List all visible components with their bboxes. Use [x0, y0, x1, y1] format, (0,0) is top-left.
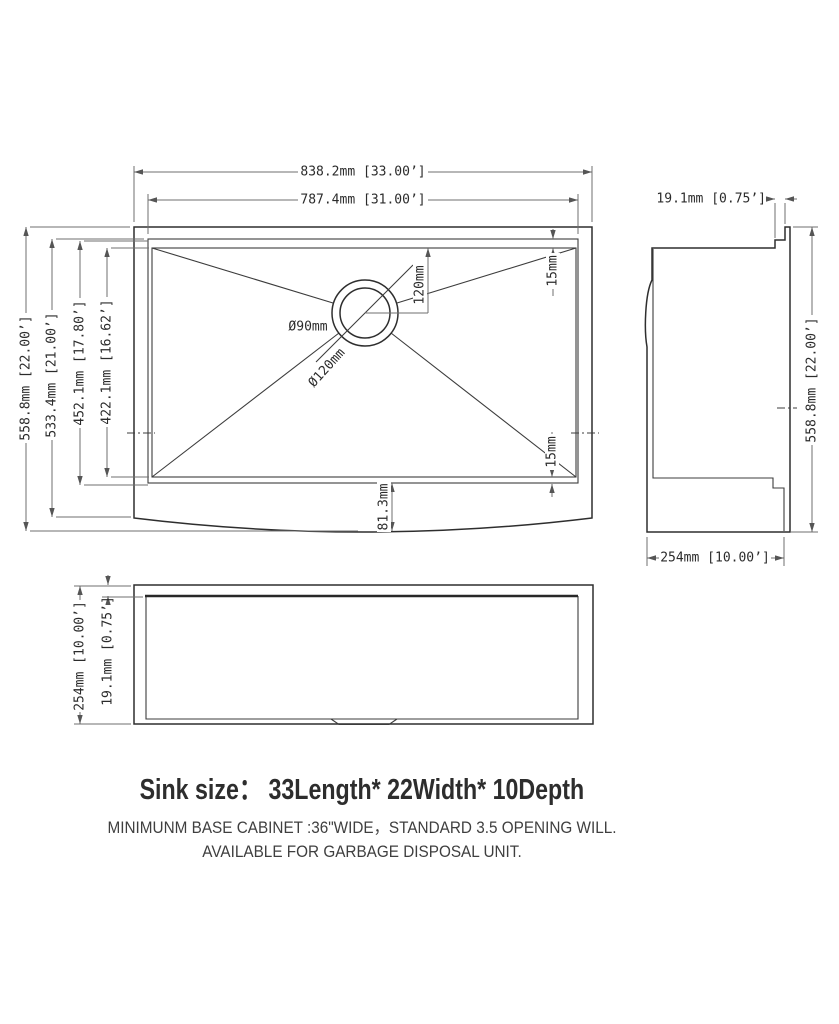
drain-outer-diameter-label: Ø120mm: [306, 345, 349, 390]
dim-drain-offset-label: 120mm: [413, 265, 428, 304]
sink-spec-sheet: 838.2mm [33.00’] 787.4mm [31.00’] 558.8m…: [0, 0, 839, 1024]
sink-size-title-text: Sink size： 33Length* 22Width* 10Depth: [140, 773, 585, 807]
side-view-bowl-profile: [653, 249, 784, 531]
front-view-inner-panel: [146, 596, 578, 719]
dim-rim-bottom-label: 15mm: [545, 436, 560, 467]
side-dim-depth-label: 558.8mm [22.00’]: [805, 317, 820, 442]
side-view: 19.1mm [0.75’] 558.8mm [22.00’] 254mm [1…: [645, 192, 819, 567]
bowl-slope-lines: [152, 248, 576, 477]
dim-overall-length-label: 838.2mm [33.00’]: [300, 165, 425, 180]
front-dim-rim-label: 19.1mm [0.75’]: [101, 596, 116, 706]
dim-bowl-width-inner-label: 422.1mm [16.62’]: [100, 299, 115, 424]
dim-inner-width-label: 533.4mm [21.00’]: [45, 312, 60, 437]
note-line-2: AVAILABLE FOR GARBAGE DISPOSAL UNIT.: [36, 840, 688, 864]
side-view-outline: [645, 227, 790, 532]
top-view: 838.2mm [33.00’] 787.4mm [31.00’] 558.8m…: [19, 165, 600, 533]
dim-rim-bottom: 15mm: [545, 434, 560, 470]
front-dim-height: 254mm [10.00’]: [73, 600, 88, 712]
sink-size-title: Sink size： 33Length* 22Width* 10Depth: [0, 773, 724, 807]
side-dim-depth: 558.8mm [22.00’]: [805, 315, 820, 445]
side-dim-rim-label: 19.1mm [0.75’]: [656, 192, 766, 207]
dim-inner-width: 533.4mm [21.00’]: [45, 310, 60, 440]
dim-drain-offset: 120mm: [413, 263, 428, 307]
top-view-outer-outline: [134, 227, 592, 532]
side-dim-height-label: 254mm [10.00’]: [660, 551, 770, 566]
dim-bowl-width-outer: 452.1mm [17.80’]: [73, 298, 88, 428]
side-dim-height: 254mm [10.00’]: [659, 551, 771, 566]
side-view-dimensions: [647, 199, 818, 566]
dim-bowl-width-inner: 422.1mm [16.62’]: [100, 297, 115, 427]
dim-apron-label: 81.3mm: [377, 483, 392, 530]
footer: Sink size： 33Length* 22Width* 10Depth MI…: [0, 773, 724, 864]
front-dim-rim: 19.1mm [0.75’]: [101, 596, 116, 706]
footer-notes: MINIMUNM BASE CABINET :36"WIDE，STANDARD …: [0, 816, 724, 864]
dim-rim-top: 15mm: [546, 253, 561, 289]
front-view-outer-rect: [134, 585, 593, 724]
dim-bowl-width-outer-label: 452.1mm [17.80’]: [73, 300, 88, 425]
dim-apron: 81.3mm: [377, 482, 392, 532]
top-view-rim-rect: [148, 239, 578, 483]
dim-inner-length: 787.4mm [31.00’]: [298, 193, 428, 208]
dim-overall-length: 838.2mm [33.00’]: [298, 165, 428, 180]
technical-drawing: 838.2mm [33.00’] 787.4mm [31.00’] 558.8m…: [0, 0, 839, 1024]
dim-inner-length-label: 787.4mm [31.00’]: [300, 193, 425, 208]
front-dim-height-label: 254mm [10.00’]: [73, 601, 88, 711]
dim-overall-width: 558.8mm [22.00’]: [19, 313, 34, 443]
front-view: 254mm [10.00’] 19.1mm [0.75’]: [73, 575, 594, 725]
top-view-bowl-rect: [152, 248, 576, 477]
dim-overall-width-label: 558.8mm [22.00’]: [19, 315, 34, 440]
drain-inner-diameter-label: Ø90mm: [288, 320, 327, 335]
note-line-1: MINIMUNM BASE CABINET :36"WIDE，STANDARD …: [36, 816, 688, 840]
dim-rim-top-label: 15mm: [546, 255, 561, 286]
